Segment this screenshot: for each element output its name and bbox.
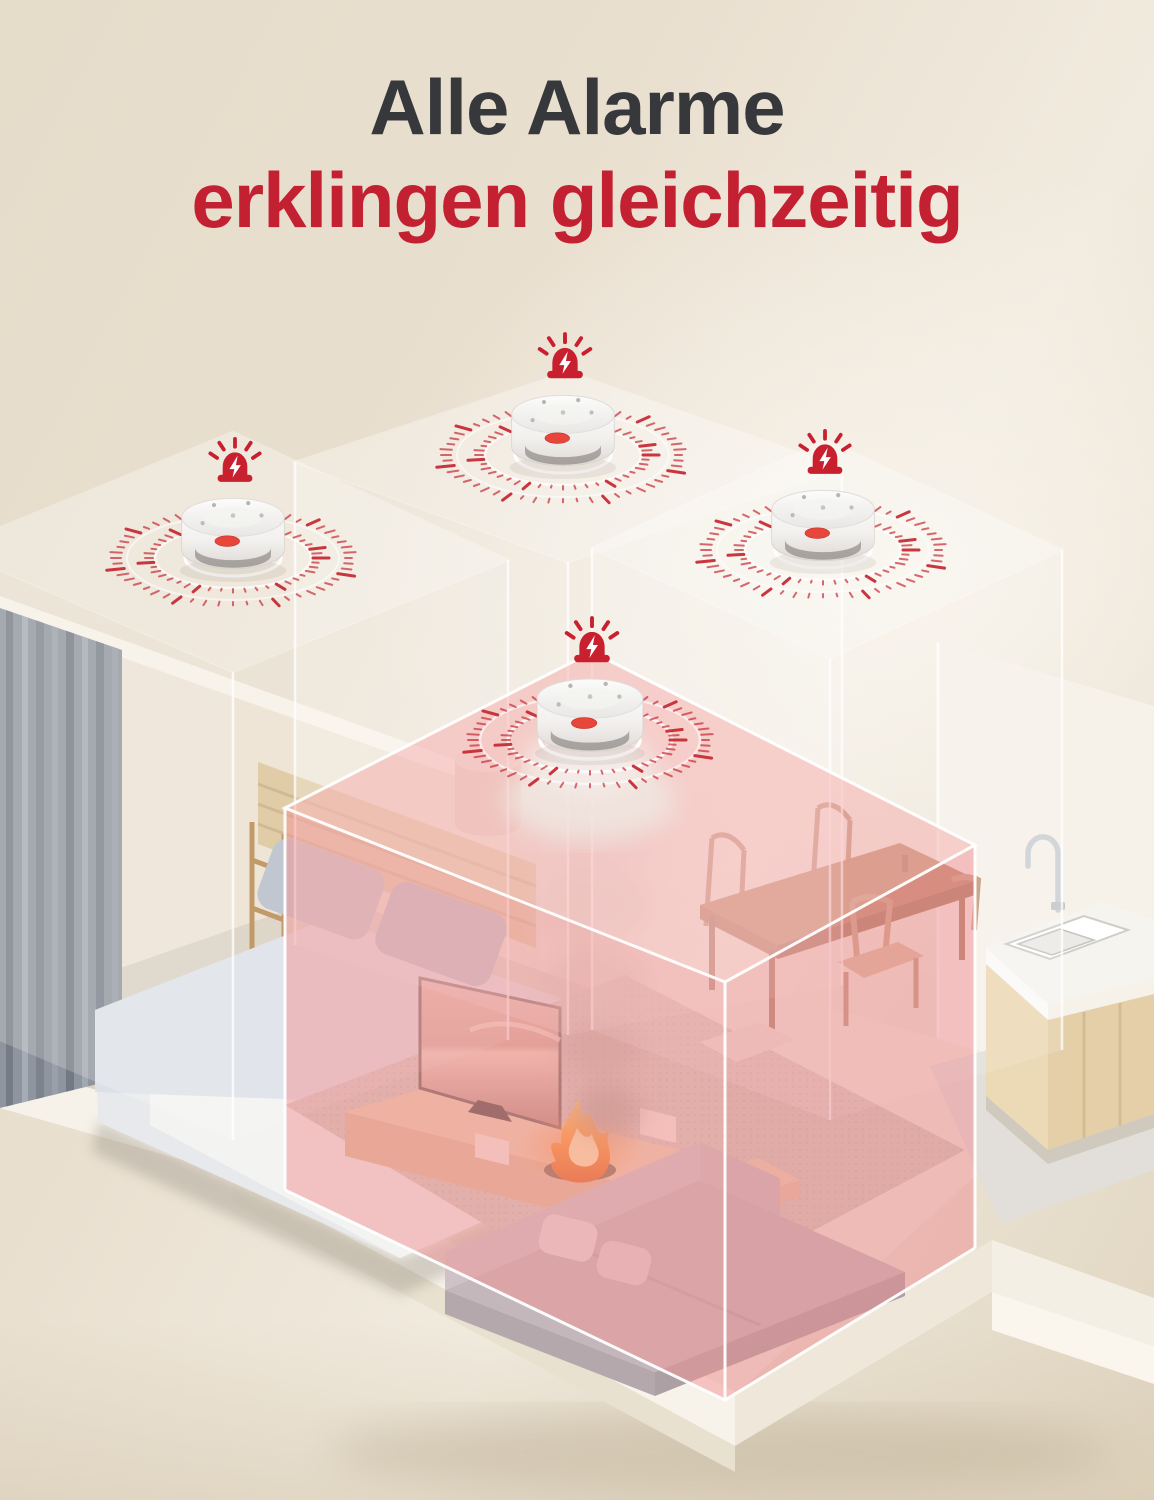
product-banner: Alle Alarme erklingen gleichzeitig [0,0,1154,1500]
smoke-alarm-device [510,395,616,479]
smoke-alarm-device [770,490,876,574]
headline-line2: erklingen gleichzeitig [0,158,1154,244]
headline: Alle Alarme erklingen gleichzeitig [0,58,1154,244]
siren-lightning-icon [540,334,591,378]
smoke-alarm-device [180,498,286,582]
headline-line1: Alle Alarme [0,58,1154,158]
smoke-alarm-device [535,679,645,765]
